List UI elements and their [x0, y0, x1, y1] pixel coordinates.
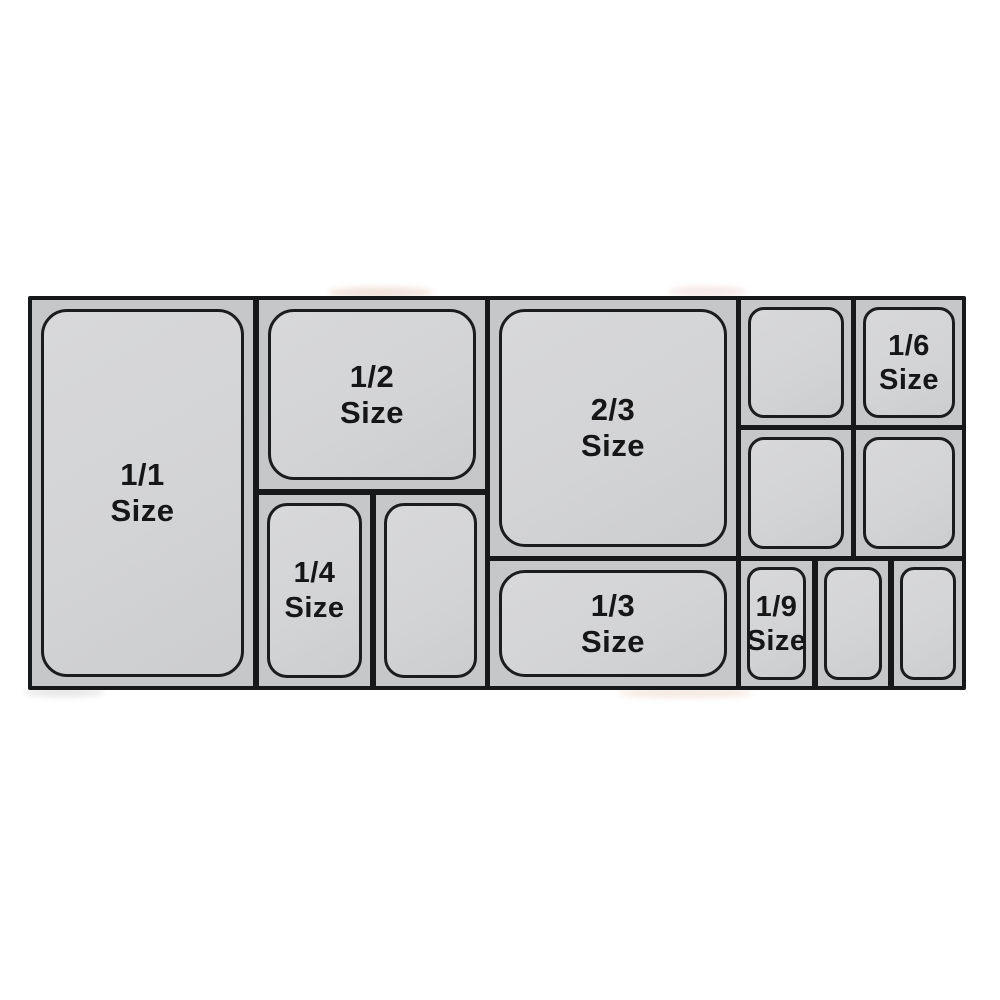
pan-1-1-fraction: 1/1 [120, 457, 165, 493]
pan-1-2-fraction: 1/2 [350, 359, 395, 395]
pan-1-6-size-label: Size [879, 363, 939, 397]
section-1-2: 1/2 Size [259, 300, 485, 489]
pan-1-4-fraction: 1/4 [294, 556, 336, 591]
section-2-3: 2/3 Size [490, 300, 736, 556]
pan-2-3-fraction: 2/3 [591, 392, 636, 428]
pan-1-1: 1/1 Size [41, 309, 244, 677]
section-1-6-unlabeled-c [856, 430, 962, 556]
pan-1-1-size-label: Size [110, 493, 174, 529]
pan-1-6: 1/6 Size [863, 307, 955, 418]
pan-1-9-fraction: 1/9 [756, 590, 798, 624]
section-1-6: 1/6 Size [856, 300, 962, 425]
section-1-4: 1/4 Size [259, 495, 370, 686]
pan-1-4: 1/4 Size [267, 503, 362, 678]
pan-1-2: 1/2 Size [268, 309, 476, 480]
pan-2-3: 2/3 Size [499, 309, 727, 547]
pan-2-3-size-label: Size [581, 428, 645, 464]
section-1-6-unlabeled-a [741, 300, 851, 425]
pan-1-6-unlabeled-c [863, 437, 955, 549]
section-1-9: 1/9 Size [741, 561, 812, 686]
section-1-1: 1/1 Size [32, 300, 253, 686]
section-1-6-unlabeled-b [741, 430, 851, 556]
section-1-4-unlabeled [376, 495, 485, 686]
pan-1-9: 1/9 Size [747, 567, 806, 680]
pan-size-diagram: 1/1 Size 1/2 Size 1/4 Size 2/3 Size [0, 0, 1000, 1000]
pan-1-3: 1/3 Size [499, 570, 727, 677]
pan-1-9-unlabeled-b [900, 567, 956, 680]
pan-1-6-fraction: 1/6 [888, 329, 930, 363]
pan-1-6-unlabeled-a [748, 307, 844, 418]
diagram-frame: 1/1 Size 1/2 Size 1/4 Size 2/3 Size [28, 296, 966, 690]
pan-1-9-unlabeled-a [824, 567, 882, 680]
section-1-3: 1/3 Size [490, 561, 736, 686]
pan-1-2-size-label: Size [340, 395, 404, 431]
section-1-9-unlabeled-b [894, 561, 962, 686]
pan-1-4-unlabeled [384, 503, 477, 678]
pan-1-9-size-label: Size [746, 624, 806, 658]
pan-1-3-size-label: Size [581, 624, 645, 660]
pan-1-4-size-label: Size [284, 591, 344, 626]
pan-1-6-unlabeled-b [748, 437, 844, 549]
section-1-9-unlabeled-a [818, 561, 888, 686]
pan-1-3-fraction: 1/3 [591, 588, 636, 624]
